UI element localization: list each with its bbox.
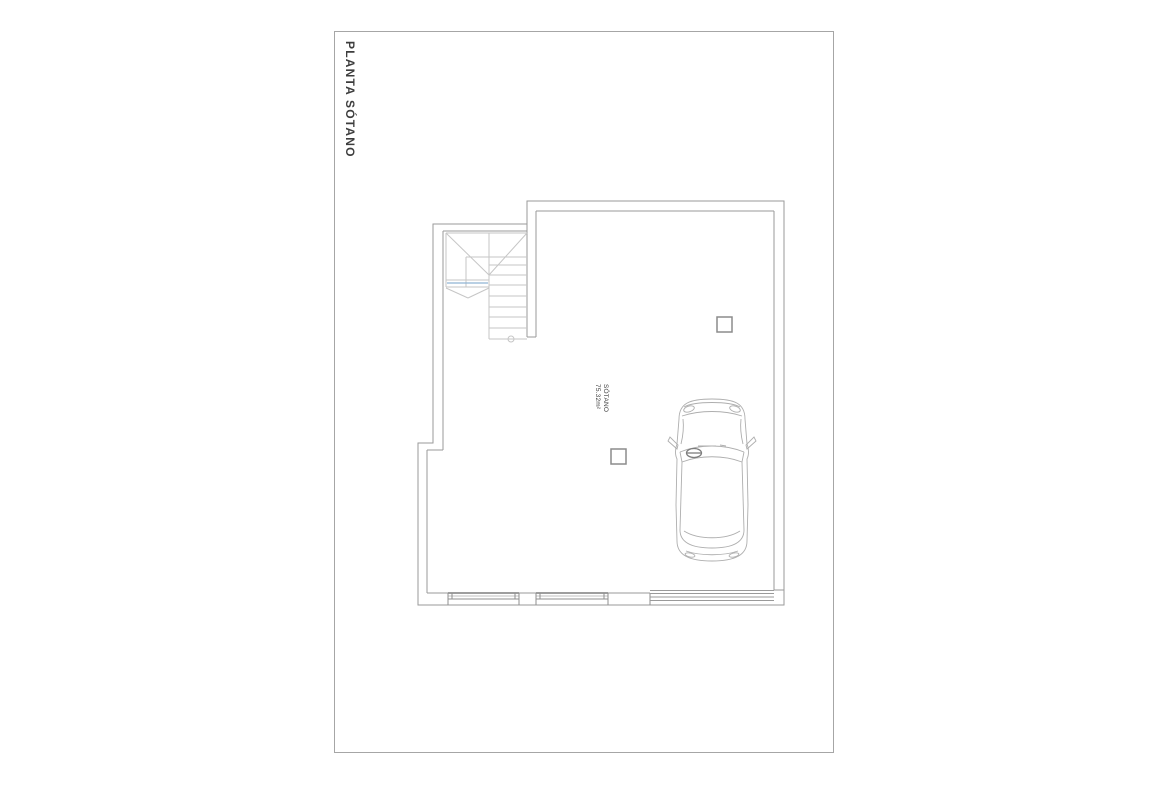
side-mirror — [746, 437, 756, 449]
floor-plan-drawing — [0, 0, 1170, 785]
column-marker — [717, 317, 732, 332]
staircase-symbol — [446, 233, 527, 342]
page: PLANTA SÓTANO SÓTANO 75.32m² — [0, 0, 1170, 785]
garage-door-symbol — [650, 591, 774, 606]
column-marker — [611, 449, 626, 464]
window-symbol — [536, 593, 608, 605]
side-mirror — [668, 437, 678, 449]
car-symbol — [668, 399, 756, 561]
window-symbol — [448, 593, 519, 605]
outer-walls — [418, 201, 784, 605]
